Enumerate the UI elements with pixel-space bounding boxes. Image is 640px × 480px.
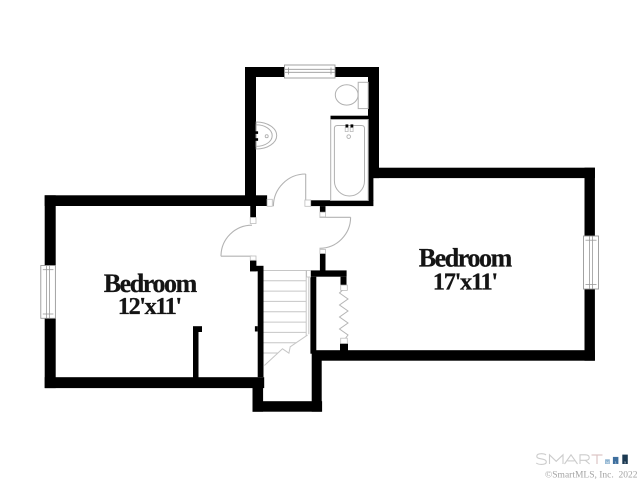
svg-text:M: M bbox=[606, 460, 609, 464]
svg-text:L: L bbox=[615, 460, 617, 464]
svg-text:17'x11': 17'x11' bbox=[433, 268, 498, 295]
svg-text:12'x11': 12'x11' bbox=[118, 293, 182, 320]
svg-text:©SmartMLS, Inc. 2022: ©SmartMLS, Inc. 2022 bbox=[545, 470, 638, 480]
svg-text:S: S bbox=[624, 460, 626, 464]
